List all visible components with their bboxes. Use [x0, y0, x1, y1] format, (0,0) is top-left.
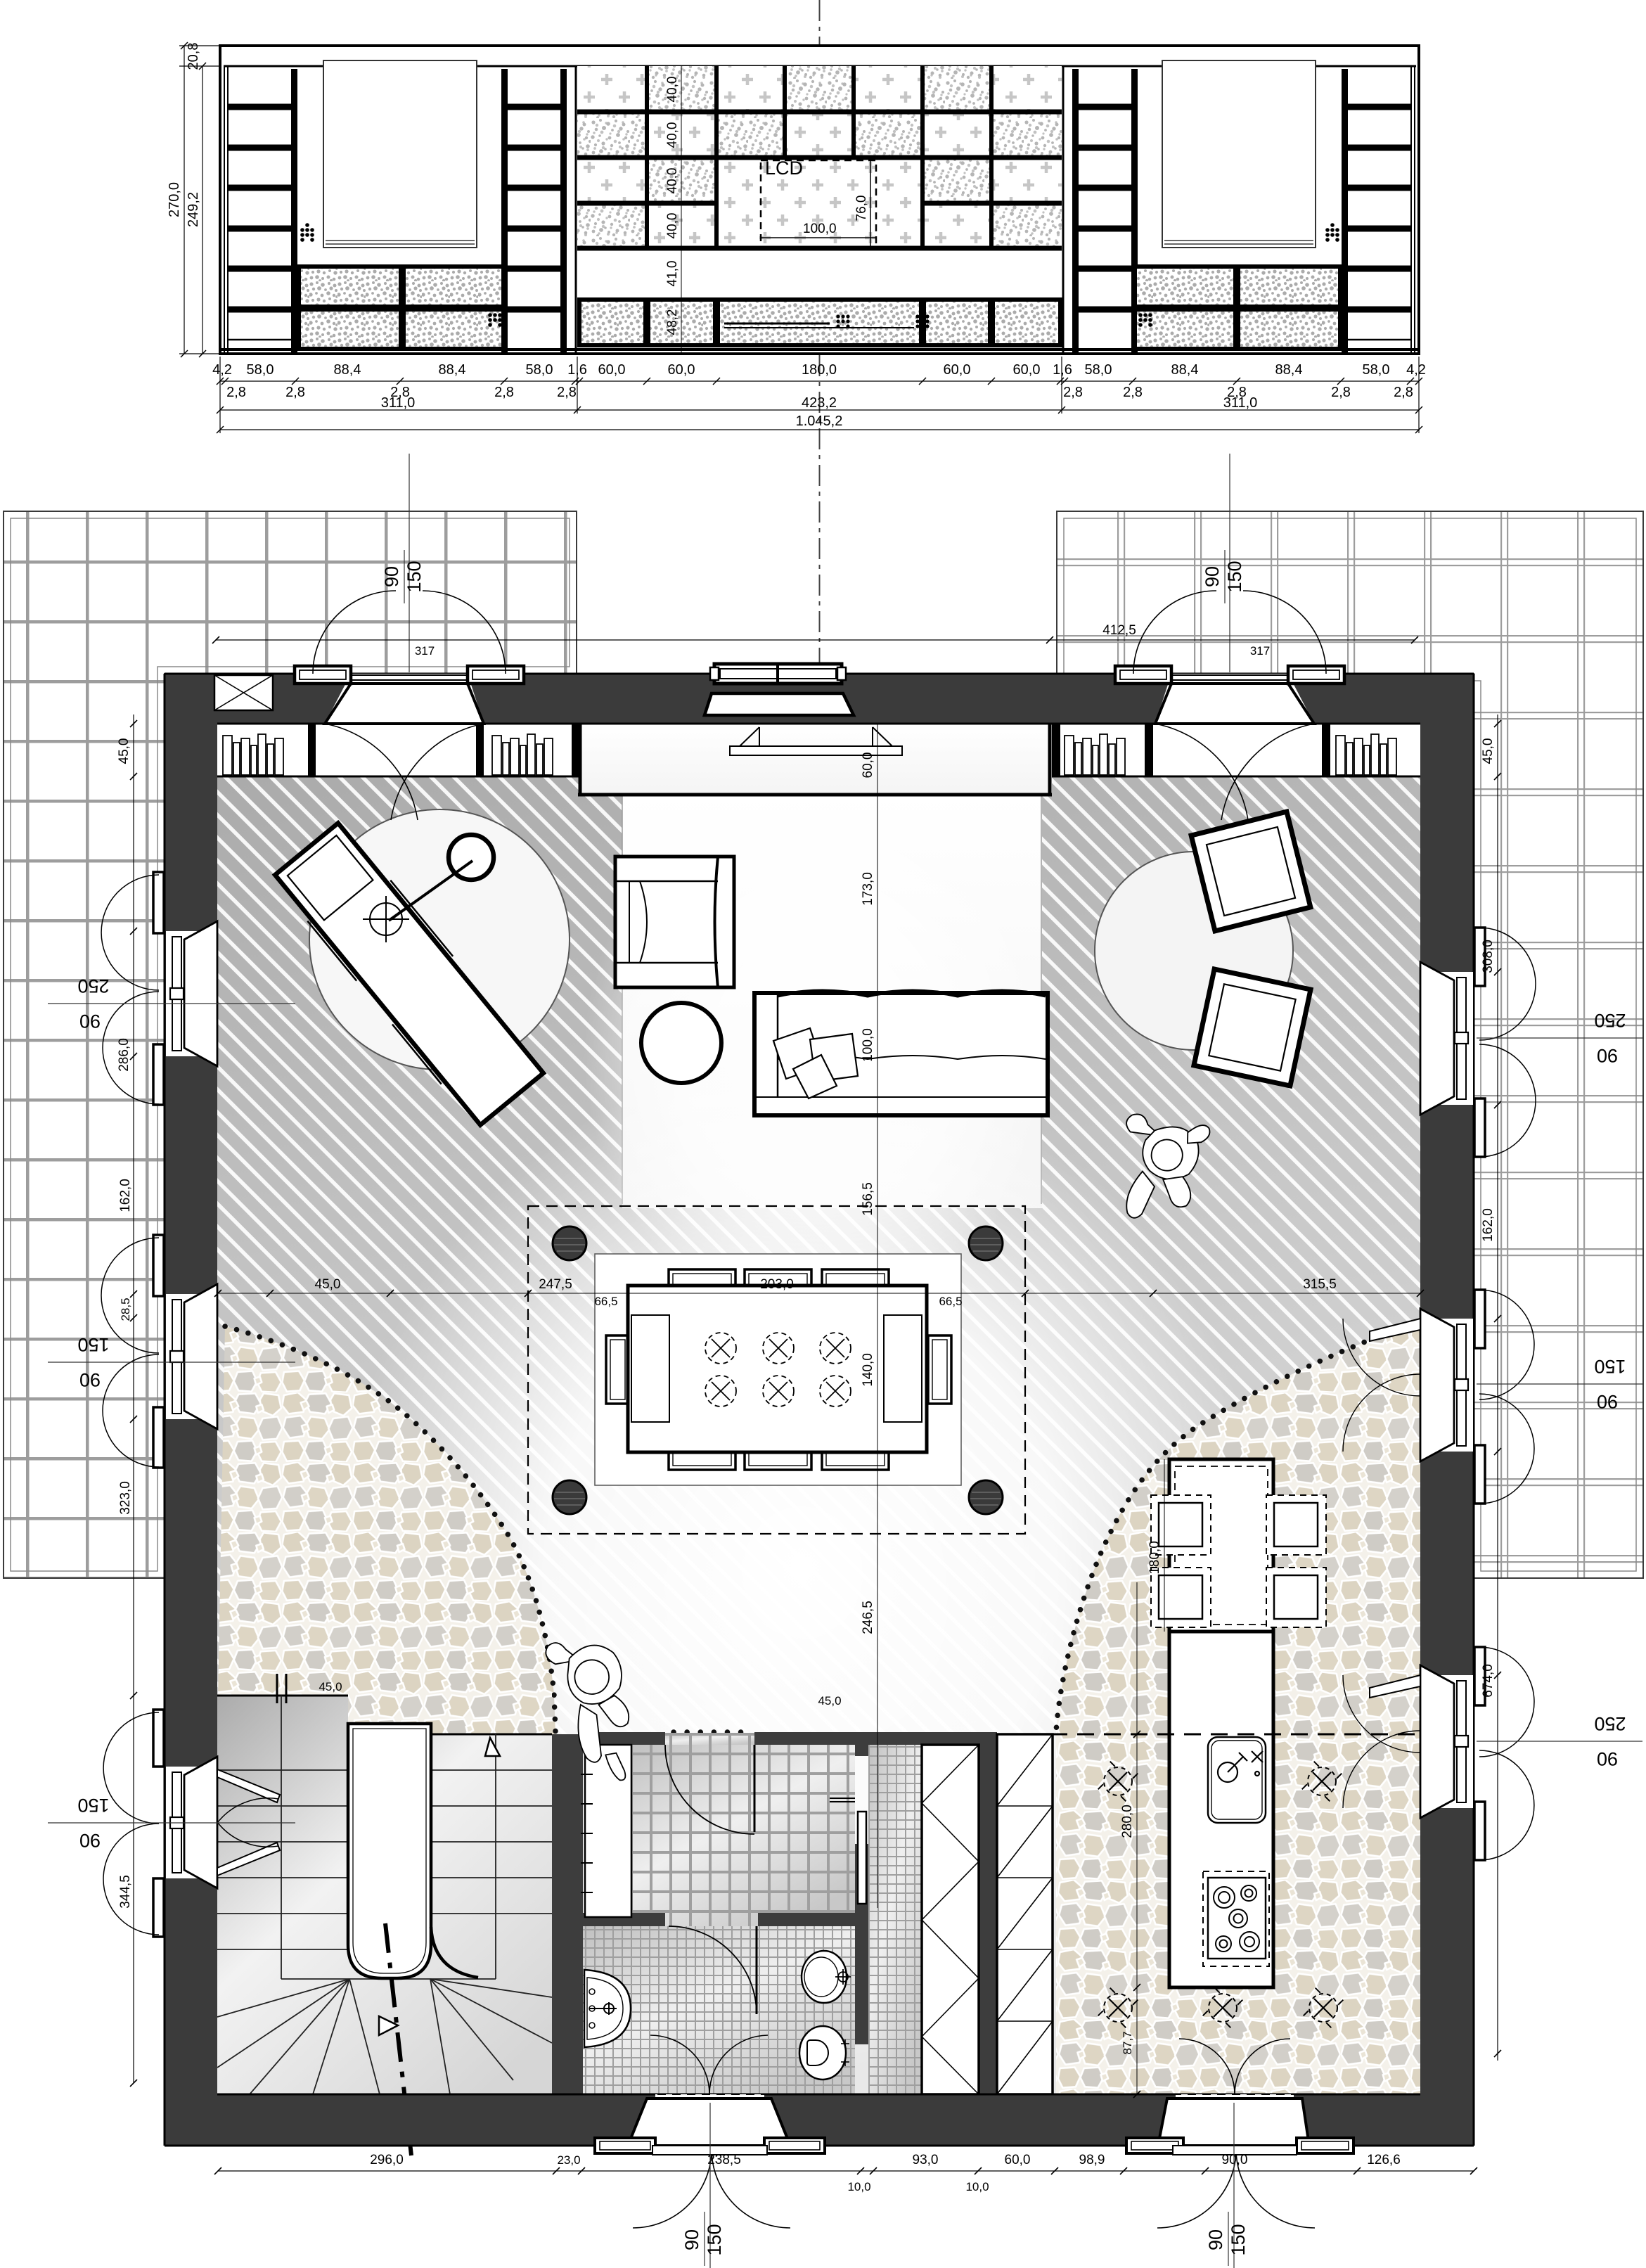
svg-text:100,0: 100,0: [803, 222, 837, 236]
svg-text:246,5: 246,5: [861, 1601, 875, 1634]
svg-text:76,0: 76,0: [854, 196, 869, 222]
svg-text:88,4: 88,4: [1275, 362, 1303, 378]
svg-text:317: 317: [1250, 644, 1270, 658]
svg-text:90: 90: [79, 1011, 101, 1032]
svg-text:98,9: 98,9: [1079, 2153, 1105, 2167]
svg-text:60,0: 60,0: [861, 752, 875, 779]
svg-text:162,0: 162,0: [118, 1179, 133, 1212]
svg-text:150: 150: [404, 560, 425, 592]
svg-text:311,0: 311,0: [381, 395, 416, 411]
svg-text:2,8: 2,8: [1123, 385, 1143, 400]
svg-text:4,2: 4,2: [212, 362, 232, 378]
svg-text:180,0: 180,0: [1147, 1541, 1162, 1575]
svg-text:2,8: 2,8: [226, 385, 246, 400]
svg-text:150: 150: [77, 1334, 109, 1355]
svg-text:28,5: 28,5: [119, 1298, 132, 1321]
svg-text:58,0: 58,0: [1085, 362, 1112, 378]
svg-text:23,0: 23,0: [557, 2153, 580, 2167]
svg-text:100,0: 100,0: [861, 1028, 875, 1062]
svg-text:40,0: 40,0: [665, 213, 680, 239]
svg-text:90: 90: [1205, 2229, 1226, 2250]
svg-text:150: 150: [704, 2224, 725, 2255]
svg-text:156,5: 156,5: [861, 1182, 875, 1216]
svg-text:203,0: 203,0: [760, 1277, 794, 1292]
svg-text:311,0: 311,0: [1223, 395, 1258, 411]
svg-text:296,0: 296,0: [370, 2153, 404, 2167]
svg-text:2,8: 2,8: [557, 385, 577, 400]
svg-text:60,0: 60,0: [944, 362, 971, 378]
svg-text:10,0: 10,0: [847, 2180, 870, 2193]
svg-text:173,0: 173,0: [861, 872, 875, 906]
svg-text:250: 250: [77, 975, 109, 997]
svg-text:249,2: 249,2: [186, 192, 201, 227]
svg-text:88,4: 88,4: [1171, 362, 1199, 378]
svg-text:674,0: 674,0: [1481, 1664, 1496, 1698]
svg-text:90: 90: [79, 1830, 101, 1851]
svg-text:2,8: 2,8: [285, 385, 305, 400]
svg-text:40,0: 40,0: [665, 77, 680, 103]
svg-text:126,6: 126,6: [1367, 2153, 1401, 2167]
svg-text:238,5: 238,5: [707, 2153, 741, 2167]
svg-text:45,0: 45,0: [315, 1277, 341, 1292]
svg-text:48,2: 48,2: [665, 309, 680, 335]
svg-text:150: 150: [1594, 1356, 1626, 1377]
svg-text:45,0: 45,0: [818, 1694, 841, 1708]
svg-text:1,6: 1,6: [1053, 362, 1072, 378]
svg-text:2,8: 2,8: [1063, 385, 1083, 400]
svg-text:60,0: 60,0: [668, 362, 695, 378]
svg-text:150: 150: [1228, 2224, 1249, 2255]
svg-text:2,8: 2,8: [1394, 385, 1413, 400]
svg-text:58,0: 58,0: [247, 362, 274, 378]
svg-text:90: 90: [1597, 1045, 1618, 1066]
svg-text:90,0: 90,0: [1222, 2153, 1248, 2167]
svg-text:250: 250: [1594, 1713, 1626, 1734]
svg-text:250: 250: [1594, 1010, 1626, 1031]
svg-text:90: 90: [381, 566, 402, 587]
svg-text:90: 90: [1202, 566, 1223, 587]
svg-text:93,0: 93,0: [913, 2153, 939, 2167]
svg-text:66,5: 66,5: [939, 1295, 962, 1308]
svg-text:247,5: 247,5: [539, 1277, 572, 1292]
svg-text:90: 90: [79, 1369, 101, 1390]
svg-text:2,8: 2,8: [494, 385, 514, 400]
svg-text:88,4: 88,4: [439, 362, 466, 378]
svg-text:60,0: 60,0: [598, 362, 626, 378]
svg-text:150: 150: [1224, 560, 1245, 592]
svg-text:90: 90: [1597, 1748, 1618, 1769]
svg-text:LCD: LCD: [765, 158, 803, 179]
svg-text:45,0: 45,0: [1481, 738, 1496, 764]
svg-text:423,2: 423,2: [802, 395, 837, 411]
svg-text:88,4: 88,4: [334, 362, 361, 378]
svg-text:40,0: 40,0: [665, 122, 680, 148]
svg-text:1.045,2: 1.045,2: [796, 414, 843, 429]
svg-text:323,0: 323,0: [118, 1481, 133, 1515]
svg-text:286,0: 286,0: [117, 1038, 131, 1072]
svg-text:66,5: 66,5: [594, 1295, 617, 1308]
svg-text:45,0: 45,0: [319, 1680, 342, 1693]
svg-text:60,0: 60,0: [1013, 362, 1041, 378]
svg-text:2,8: 2,8: [1331, 385, 1351, 400]
svg-text:58,0: 58,0: [526, 362, 553, 378]
svg-text:4,2: 4,2: [1406, 362, 1426, 378]
svg-text:140,0: 140,0: [861, 1353, 875, 1387]
svg-text:40,0: 40,0: [665, 168, 680, 194]
svg-text:87,7: 87,7: [1121, 2031, 1134, 2054]
svg-text:280,0: 280,0: [1120, 1805, 1135, 1838]
svg-text:150: 150: [77, 1795, 109, 1816]
svg-text:90: 90: [1597, 1391, 1618, 1412]
svg-text:344,5: 344,5: [118, 1875, 133, 1909]
svg-text:412,5: 412,5: [1102, 623, 1136, 638]
svg-text:45,0: 45,0: [117, 738, 131, 764]
svg-text:41,0: 41,0: [665, 261, 680, 287]
svg-text:180,0: 180,0: [802, 362, 837, 378]
svg-text:317: 317: [415, 644, 435, 658]
svg-text:90: 90: [681, 2229, 702, 2250]
svg-text:315,5: 315,5: [1303, 1277, 1337, 1292]
svg-text:270,0: 270,0: [167, 182, 182, 217]
svg-text:58,0: 58,0: [1363, 362, 1390, 378]
svg-text:60,0: 60,0: [1005, 2153, 1031, 2167]
svg-text:10,0: 10,0: [965, 2180, 989, 2193]
svg-text:308,0: 308,0: [1481, 940, 1496, 973]
svg-text:1,6: 1,6: [567, 362, 587, 378]
svg-text:20,8: 20,8: [186, 43, 201, 70]
svg-text:162,0: 162,0: [1481, 1208, 1496, 1242]
